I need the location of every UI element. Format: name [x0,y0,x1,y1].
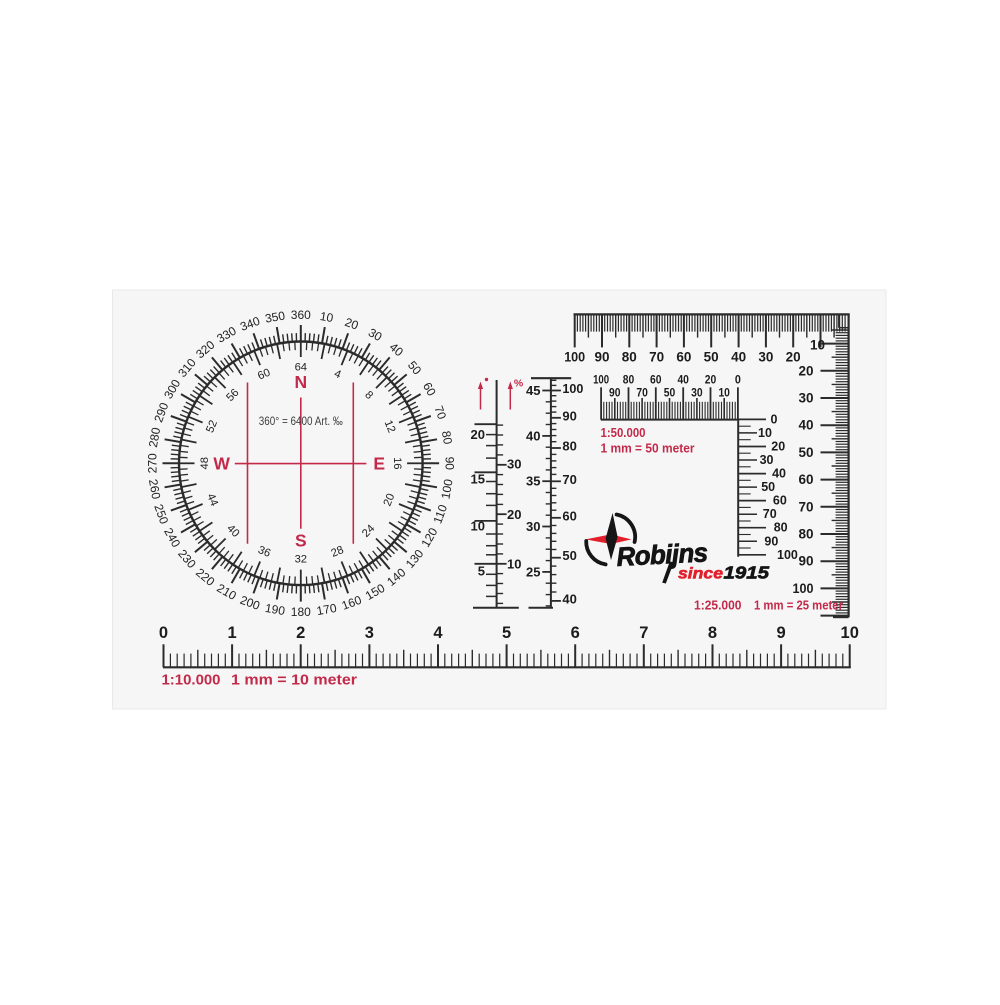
svg-text:0: 0 [735,372,741,386]
svg-text:360° = 6400 Art. ‰: 360° = 6400 Art. ‰ [259,415,343,428]
svg-text:45: 45 [526,383,540,398]
svg-text:70: 70 [562,472,576,487]
svg-text:360: 360 [291,308,311,322]
svg-text:40: 40 [772,467,786,481]
svg-text:4: 4 [433,624,443,642]
svg-text:80: 80 [622,349,637,364]
svg-text:10: 10 [841,624,859,642]
svg-text:5: 5 [502,624,511,642]
svg-text:90: 90 [764,534,778,548]
svg-text:30: 30 [758,349,773,364]
svg-text:20: 20 [798,363,813,378]
svg-text:E: E [373,454,385,474]
svg-text:50: 50 [761,480,775,494]
svg-text:50: 50 [664,385,676,399]
svg-text:since: since [678,566,723,583]
svg-text:50: 50 [704,349,719,364]
svg-text:30: 30 [760,453,774,467]
svg-text:80: 80 [774,521,788,535]
svg-text:3: 3 [365,624,374,642]
svg-text:60: 60 [562,508,576,523]
svg-text:180: 180 [291,605,311,619]
svg-text:%: % [514,378,524,390]
svg-text:0: 0 [159,624,168,642]
svg-text:70: 70 [763,507,777,521]
svg-text:10: 10 [507,556,521,571]
svg-text:10: 10 [471,519,485,534]
svg-text:1:10.000: 1:10.000 [162,671,221,688]
svg-text:9: 9 [777,624,786,642]
svg-text:20: 20 [786,349,801,364]
svg-text:80: 80 [623,372,635,386]
svg-text:16: 16 [391,457,403,469]
svg-text:100: 100 [777,548,798,562]
svg-text:80: 80 [798,527,813,542]
svg-text:90: 90 [442,457,456,471]
svg-text:100: 100 [793,581,814,596]
svg-text:30: 30 [507,457,521,472]
svg-text:40: 40 [677,372,689,386]
svg-text:2: 2 [296,624,305,642]
svg-text:20: 20 [705,372,717,386]
svg-text:50: 50 [562,548,576,563]
svg-text:25: 25 [526,564,540,579]
svg-text:100: 100 [593,372,609,386]
svg-text:90: 90 [594,349,609,364]
svg-text:W: W [213,454,230,474]
svg-text:5: 5 [478,564,485,579]
svg-text:30: 30 [526,519,540,534]
svg-text:60: 60 [676,349,691,364]
svg-text:40: 40 [562,591,576,606]
svg-text:80: 80 [439,430,455,446]
svg-text:20: 20 [771,440,785,454]
svg-text:40: 40 [526,428,540,443]
svg-text:S: S [295,531,307,551]
svg-text:1 mm = 50 meter: 1 mm = 50 meter [601,441,695,456]
svg-text:6: 6 [571,624,580,642]
svg-text:8: 8 [708,624,717,642]
svg-text:7: 7 [639,624,648,642]
svg-text:70: 70 [798,499,813,514]
svg-text:40: 40 [731,349,746,364]
svg-text:10: 10 [810,338,825,353]
svg-text:90: 90 [562,408,576,423]
svg-text:40: 40 [798,418,813,433]
svg-text:60: 60 [650,372,662,386]
svg-text:1:25.000: 1:25.000 [694,597,742,612]
svg-text:70: 70 [649,349,664,364]
svg-text:30: 30 [798,391,813,406]
svg-text:10: 10 [758,426,772,440]
svg-text:270: 270 [145,453,159,473]
svg-text:32: 32 [295,553,307,565]
svg-text:50: 50 [798,445,813,460]
svg-text:1:50.000: 1:50.000 [601,425,646,440]
svg-text:90: 90 [798,554,813,569]
svg-text:100: 100 [562,381,583,396]
svg-text:60: 60 [798,472,813,487]
svg-text:35: 35 [526,474,540,489]
svg-text:80: 80 [562,439,576,454]
svg-text:N: N [294,372,307,392]
svg-text:0: 0 [771,412,778,426]
svg-text:70: 70 [636,385,648,399]
svg-text:15: 15 [471,471,485,486]
svg-text:60: 60 [773,494,787,508]
svg-text:1 mm = 10 meter: 1 mm = 10 meter [231,671,357,688]
svg-text:20: 20 [471,427,485,442]
svg-text:30: 30 [691,385,703,399]
svg-text:90: 90 [609,385,621,399]
svg-text:10: 10 [718,385,730,399]
svg-text:1915: 1915 [724,562,770,582]
svg-text:100: 100 [564,349,585,364]
svg-text:1: 1 [228,624,237,642]
svg-text:20: 20 [507,507,521,522]
svg-text:48: 48 [199,457,211,469]
svg-text:10: 10 [319,309,335,325]
svg-text:1 mm = 25 meter: 1 mm = 25 meter [754,597,843,612]
